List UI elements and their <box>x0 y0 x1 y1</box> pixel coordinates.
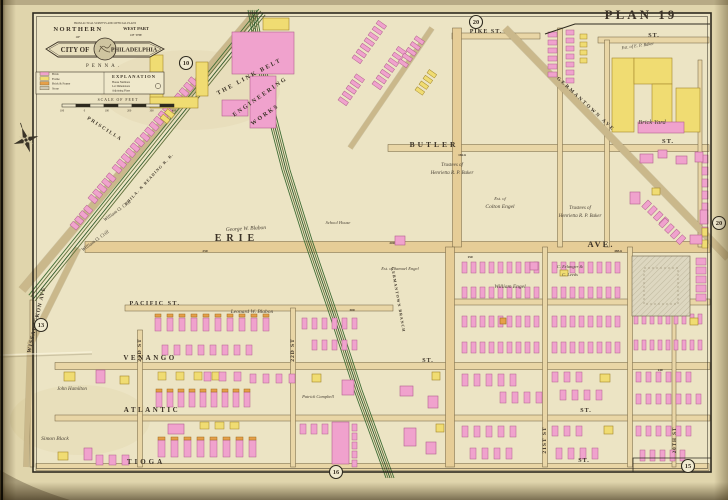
building <box>516 262 521 273</box>
building <box>686 394 691 404</box>
scale-segment <box>118 104 132 107</box>
legend-title: EXPLANATION <box>112 74 156 79</box>
building <box>168 424 184 434</box>
map-label: ST. <box>662 138 674 145</box>
building <box>246 345 252 355</box>
building <box>588 262 593 273</box>
building <box>227 318 233 331</box>
building <box>552 316 557 327</box>
building <box>588 342 593 353</box>
building <box>219 372 226 381</box>
map-label: ST. <box>580 408 591 414</box>
building-row <box>636 394 701 404</box>
legend-swatch <box>40 82 49 85</box>
building <box>120 376 129 384</box>
map-label: ST. <box>648 33 659 39</box>
building <box>474 426 480 437</box>
building <box>178 389 184 392</box>
building <box>566 78 574 83</box>
banner-city-of: CITY OF <box>61 46 90 54</box>
building <box>676 394 681 404</box>
building <box>480 316 485 327</box>
building <box>239 318 245 331</box>
map-label: ERIE <box>215 233 259 244</box>
building <box>606 262 611 273</box>
building <box>203 318 209 331</box>
map-label: TIOGA <box>127 458 165 466</box>
building <box>534 342 539 353</box>
building <box>223 440 230 457</box>
building <box>525 342 530 353</box>
legend-swatch <box>40 77 49 80</box>
building <box>660 450 665 461</box>
building <box>215 314 221 317</box>
title-line2b: OF THE <box>130 33 142 37</box>
map-label: AVE. <box>588 239 615 249</box>
street-road <box>605 40 610 247</box>
building-row <box>96 455 129 465</box>
building <box>480 287 485 298</box>
building <box>471 262 476 273</box>
plate-ref: 20 <box>470 16 483 29</box>
building <box>552 342 557 353</box>
building <box>580 50 587 55</box>
building <box>666 340 670 350</box>
building <box>223 437 230 440</box>
map-label: Patrick Campbell <box>301 394 335 399</box>
building <box>695 152 703 162</box>
building <box>552 372 558 382</box>
building <box>194 372 202 380</box>
building <box>588 287 593 298</box>
building <box>263 374 269 383</box>
building-row <box>156 389 250 392</box>
building <box>696 258 706 265</box>
building <box>211 392 217 407</box>
building <box>646 394 651 404</box>
building <box>597 342 602 353</box>
building <box>289 374 295 383</box>
building <box>698 314 702 324</box>
map-label: C. Leeds <box>562 272 578 277</box>
building <box>630 192 640 204</box>
map-label: William Engel <box>494 284 526 290</box>
street-road <box>446 247 455 467</box>
street-road <box>55 363 710 370</box>
building <box>634 58 672 84</box>
street-road <box>453 28 462 247</box>
legend-item-label: Brick <box>52 72 59 76</box>
map-label: 485.6 <box>614 249 622 253</box>
map-label: Simon Black <box>41 436 69 442</box>
legend-item-label: Frame <box>52 77 60 81</box>
building <box>498 342 503 353</box>
building <box>395 236 405 245</box>
map-label: 22D ST <box>290 338 296 362</box>
map-label: VENANGO <box>123 354 176 362</box>
building-row <box>156 392 250 407</box>
scale-segment <box>90 104 104 107</box>
building <box>570 342 575 353</box>
building <box>167 314 173 317</box>
building <box>426 442 436 454</box>
building <box>322 424 328 434</box>
building <box>191 318 197 331</box>
building <box>570 316 575 327</box>
building <box>176 372 184 380</box>
map-label: 150 <box>467 255 473 259</box>
building <box>171 440 178 457</box>
building-row <box>552 426 582 436</box>
building <box>171 437 178 440</box>
building <box>436 424 444 432</box>
legend-item-label: Stone <box>52 86 60 90</box>
building <box>480 342 485 353</box>
building <box>576 372 582 382</box>
building <box>579 342 584 353</box>
building <box>656 372 661 382</box>
building <box>640 154 653 163</box>
plate-ref-number: 16 <box>333 469 340 476</box>
building <box>548 72 557 77</box>
building <box>470 448 476 459</box>
map-label: Leonard W. Blabon <box>230 309 274 315</box>
building-row <box>634 340 702 350</box>
building <box>666 426 671 436</box>
building <box>498 374 504 386</box>
building <box>579 316 584 327</box>
building <box>222 392 228 407</box>
building <box>507 316 512 327</box>
building <box>606 342 611 353</box>
building <box>612 58 634 132</box>
building-row <box>462 262 539 273</box>
building <box>428 396 438 408</box>
map-label: Brick Yard <box>638 119 666 126</box>
building <box>702 167 708 175</box>
building <box>564 426 570 436</box>
building <box>548 56 557 61</box>
building <box>568 448 574 459</box>
building <box>462 342 467 353</box>
map-label: Henrietta R. P. Baker <box>558 214 602 219</box>
building <box>600 374 610 382</box>
building <box>332 318 337 329</box>
building <box>702 191 708 199</box>
building <box>158 437 165 440</box>
building <box>564 372 570 382</box>
building-row <box>200 422 239 429</box>
building <box>233 392 239 407</box>
building <box>702 228 708 236</box>
building <box>210 437 217 440</box>
building <box>652 188 660 195</box>
building <box>498 262 503 273</box>
building <box>510 426 516 437</box>
building <box>530 262 538 270</box>
title-line2: WEST PART <box>123 26 149 31</box>
building <box>579 287 584 298</box>
scale-segment <box>146 104 160 107</box>
building <box>215 318 221 331</box>
title-line1: NORTHERN <box>53 26 102 33</box>
building <box>276 374 282 383</box>
title-penna: PENNA. <box>86 64 122 69</box>
building <box>96 455 103 465</box>
building <box>489 342 494 353</box>
plate-ref: 15 <box>682 460 695 473</box>
building <box>311 424 317 434</box>
plate-ref-number: 10 <box>183 60 190 67</box>
building <box>494 448 500 459</box>
building <box>536 392 542 403</box>
plate-ref: 13 <box>35 319 48 332</box>
building <box>203 314 209 317</box>
building <box>572 390 578 400</box>
building <box>471 316 476 327</box>
scale-tick-label: 200 <box>127 110 132 113</box>
building <box>604 426 613 434</box>
building <box>96 370 105 383</box>
plate-ref: 10 <box>180 57 193 70</box>
building <box>322 340 327 350</box>
building <box>236 437 243 440</box>
building <box>690 340 694 350</box>
building <box>534 316 539 327</box>
building <box>570 287 575 298</box>
building <box>676 156 687 164</box>
stone-yard-block <box>632 256 690 316</box>
building-row <box>552 372 582 382</box>
building <box>210 440 217 457</box>
building <box>198 345 204 355</box>
building <box>525 316 530 327</box>
street-edge <box>26 345 30 467</box>
building <box>249 437 256 440</box>
building <box>566 62 574 67</box>
map-label: 21ST ST <box>542 426 548 453</box>
building <box>302 318 307 329</box>
plate-ref-number: 13 <box>38 322 45 329</box>
building <box>196 62 208 96</box>
legend-note: Lot Dimensions <box>112 85 130 88</box>
building <box>462 287 467 298</box>
building <box>352 340 357 350</box>
building <box>156 389 162 392</box>
building <box>249 440 256 457</box>
scale-segment <box>104 104 118 107</box>
building <box>642 340 646 350</box>
building <box>580 58 587 63</box>
atlas-map-canvas: PLAN 19 NORTHERN OF WEST PART OF THE FRO… <box>0 0 728 500</box>
building <box>500 392 506 403</box>
building <box>576 426 582 436</box>
building <box>646 372 651 382</box>
building <box>566 30 574 35</box>
building <box>352 460 357 467</box>
map-label: 20TH ST <box>673 427 678 454</box>
building <box>312 340 317 350</box>
building <box>312 318 317 329</box>
building <box>686 372 691 382</box>
building <box>596 390 602 400</box>
map-label: Trustees of <box>569 206 591 211</box>
legend-swatch <box>40 86 49 89</box>
building <box>200 392 206 407</box>
building <box>548 48 557 53</box>
building <box>471 342 476 353</box>
building <box>332 340 337 350</box>
building <box>656 394 661 404</box>
building <box>222 345 228 355</box>
building <box>646 426 651 436</box>
building <box>197 437 204 440</box>
building <box>580 42 587 47</box>
scale-tick-label: 100 <box>60 110 65 113</box>
building <box>222 389 228 392</box>
building <box>489 262 494 273</box>
building <box>650 340 654 350</box>
building <box>167 392 173 407</box>
building <box>178 392 184 407</box>
building <box>486 426 492 437</box>
building <box>210 345 216 355</box>
map-label: BUTLER <box>410 140 459 149</box>
building <box>548 40 557 45</box>
legend-swatch <box>40 72 49 75</box>
building <box>525 262 530 273</box>
building <box>534 287 539 298</box>
scale-tick-label: 100 <box>105 110 110 113</box>
building <box>597 287 602 298</box>
building <box>462 316 467 327</box>
building <box>674 340 678 350</box>
building <box>155 314 161 317</box>
building <box>155 318 161 331</box>
building <box>480 262 485 273</box>
building <box>211 389 217 392</box>
building <box>666 372 671 382</box>
building <box>561 287 566 298</box>
building <box>64 372 75 381</box>
scale-segment <box>160 104 174 107</box>
building <box>682 340 686 350</box>
building <box>566 70 574 75</box>
building <box>200 389 206 392</box>
building <box>580 34 587 39</box>
building <box>658 340 662 350</box>
legend-note: Adjoining Plans <box>112 89 130 92</box>
scale-tick-label: 300 <box>149 110 154 113</box>
building <box>186 345 192 355</box>
building <box>179 314 185 317</box>
building <box>263 18 289 30</box>
building <box>332 422 349 464</box>
building <box>606 287 611 298</box>
building <box>158 440 165 457</box>
building <box>676 372 681 382</box>
building <box>352 424 357 431</box>
map-label: John Hamilton <box>57 387 87 392</box>
map-label: 300 <box>349 308 355 312</box>
building <box>197 440 204 457</box>
building <box>109 455 116 465</box>
building <box>658 150 667 158</box>
building <box>560 390 566 400</box>
building <box>352 433 357 440</box>
building-column <box>696 258 706 301</box>
building <box>507 262 512 273</box>
map-label: 140 <box>657 368 663 372</box>
building <box>690 318 698 325</box>
building <box>686 426 691 436</box>
building <box>696 276 706 283</box>
building <box>156 392 162 407</box>
building <box>244 389 250 392</box>
plate-ref-number: 20 <box>473 19 480 26</box>
building <box>698 340 702 350</box>
building <box>236 440 243 457</box>
building <box>489 316 494 327</box>
building <box>636 394 641 404</box>
building <box>471 287 476 298</box>
building <box>606 316 611 327</box>
building <box>702 179 708 187</box>
building <box>179 318 185 331</box>
map-label: Trustees of <box>441 163 463 168</box>
building <box>184 440 191 457</box>
building <box>400 386 413 396</box>
map-label: C. Erlanger & <box>557 264 584 269</box>
building <box>474 374 480 386</box>
building <box>592 448 598 459</box>
building <box>486 374 492 386</box>
building <box>566 38 574 43</box>
map-label: Henrietta R. P. Baker <box>430 171 474 176</box>
building <box>525 287 530 298</box>
building <box>342 340 347 350</box>
banner-philadelphia: PHILADELPHIA <box>111 48 158 54</box>
building <box>489 287 494 298</box>
map-label: PIKE ST. <box>470 29 503 35</box>
building <box>615 262 620 273</box>
building <box>640 450 645 461</box>
building <box>58 452 68 460</box>
plate-number: PLAN 19 <box>605 7 678 22</box>
building <box>244 392 250 407</box>
building <box>300 424 306 434</box>
building <box>322 318 327 329</box>
building <box>561 342 566 353</box>
building <box>597 316 602 327</box>
building <box>234 345 240 355</box>
map-label: ATLANTIC <box>124 406 180 414</box>
building <box>204 372 211 381</box>
building <box>696 394 701 404</box>
building <box>184 437 191 440</box>
map-label: Est. of <box>493 196 506 201</box>
building-row <box>462 342 539 353</box>
building <box>566 54 574 59</box>
building <box>462 262 467 273</box>
building <box>263 318 269 331</box>
building <box>561 316 566 327</box>
building <box>615 342 620 353</box>
building <box>516 316 521 327</box>
building <box>636 426 641 436</box>
atlas-page: PLAN 19 NORTHERN OF WEST PART OF THE FRO… <box>0 0 728 500</box>
building <box>500 318 506 324</box>
